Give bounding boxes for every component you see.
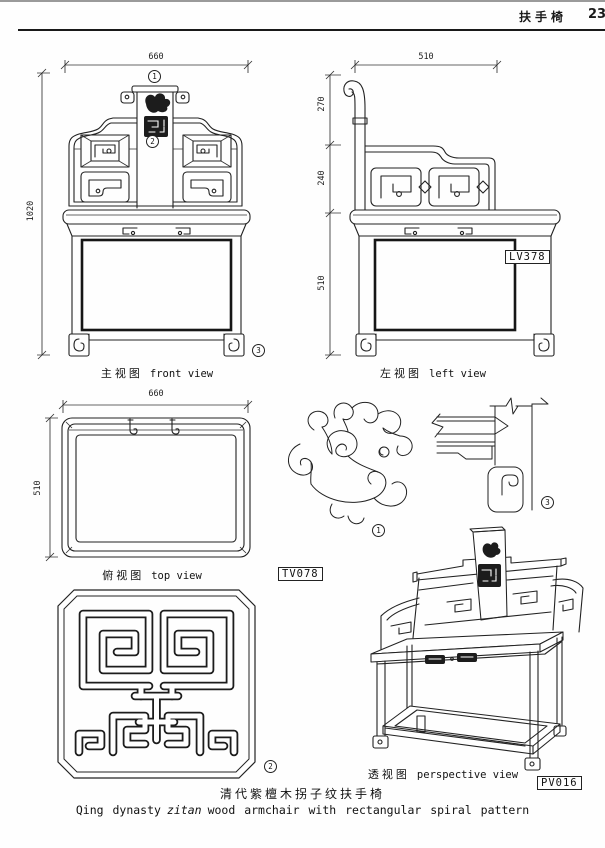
top-view-caption: 俯视图top view: [102, 567, 202, 583]
left-caption-en: left view: [429, 368, 486, 380]
footer-caption-cn: 清代紫檀木拐子纹扶手椅: [0, 785, 605, 802]
footer-en-post: wood armchair with rectangular spiral pa…: [208, 803, 530, 817]
leg-joint-detail: [428, 395, 578, 520]
book-page: 扶手椅 23: [0, 0, 605, 848]
perspective-view-drawing: [355, 520, 600, 770]
footer-en-italic: zitan: [167, 803, 202, 817]
left-seat-dim: 510: [317, 275, 327, 290]
top-view-drawing: [25, 388, 315, 568]
front-height-dim: 1020: [26, 201, 36, 221]
top-caption-en: top view: [151, 570, 202, 582]
front-marker-leg: 3: [252, 344, 265, 357]
front-marker-crest: 1: [148, 70, 161, 83]
left-view-caption: 左视图left view: [380, 365, 486, 381]
front-view-drawing: [25, 48, 300, 385]
top-width-dim: 660: [148, 389, 163, 399]
left-view-code: LV378: [505, 250, 550, 264]
left-caption-cn: 左视图: [380, 367, 422, 380]
perspective-view-caption: 透视图perspective view: [368, 766, 518, 782]
top-depth-dim: 510: [33, 480, 43, 495]
header-page-number: 23: [588, 7, 605, 22]
front-caption-cn: 主视图: [101, 367, 143, 380]
cloud-carving-detail: [280, 396, 430, 538]
page-top-edge: [0, 0, 605, 2]
front-marker-splat: 2: [146, 135, 159, 148]
footer-en-pre: Qing dynasty: [76, 803, 161, 817]
front-width-dim: 660: [148, 52, 163, 62]
front-caption-en: front view: [150, 368, 213, 380]
left-back-mid-dim: 240: [317, 170, 327, 185]
header-rule: [18, 29, 605, 31]
panel-detail-marker: 2: [264, 760, 277, 773]
top-caption-cn: 俯视图: [102, 569, 144, 582]
perspective-caption-en: perspective view: [417, 769, 518, 781]
perspective-caption-cn: 透视图: [368, 768, 410, 781]
left-view-drawing: [305, 48, 575, 385]
joint-detail-marker: 3: [541, 496, 554, 509]
footer-caption-en: Qing dynastyzitanwood armchair with rect…: [0, 803, 605, 817]
left-back-top-dim: 270: [317, 96, 327, 111]
header-title: 扶手椅: [519, 8, 567, 25]
left-width-dim: 510: [418, 52, 433, 62]
splat-panel-detail: [55, 588, 257, 780]
top-view-code: TV078: [278, 567, 323, 581]
front-view-caption: 主视图front view: [101, 365, 213, 381]
